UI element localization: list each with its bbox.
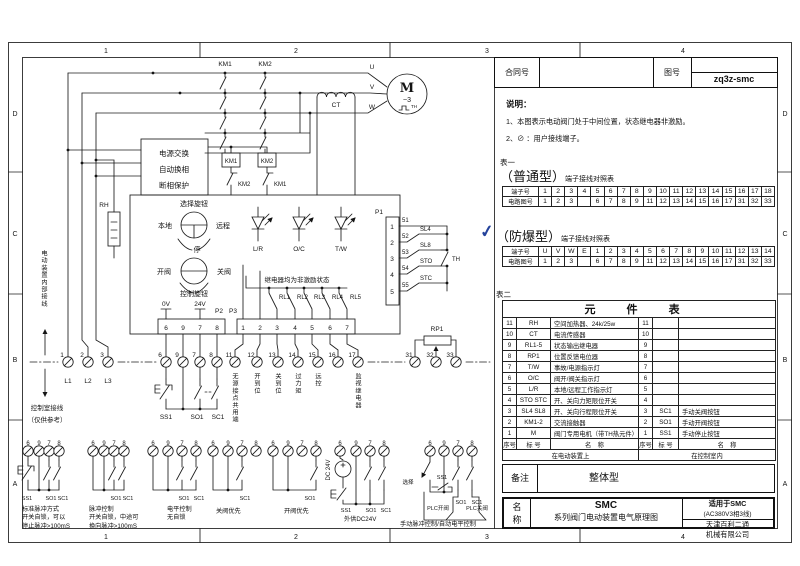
terminal-number: 33	[446, 352, 454, 359]
ex-button: SS1	[22, 496, 32, 502]
motor-letter: M	[400, 81, 414, 96]
selector-local: 本地	[158, 221, 172, 230]
interlock-label: KM1	[274, 182, 287, 188]
pin-label: 1	[241, 325, 245, 332]
wire-number: 55	[402, 283, 409, 289]
pin-label: 7	[345, 325, 349, 332]
title-block: 合同号 图号 zq3z-smc	[494, 57, 778, 88]
switch-label: SL4	[420, 227, 431, 233]
interlock-label: KM2	[238, 182, 251, 188]
pin-label: 4	[390, 272, 394, 279]
parts-row: 5L/R本地/远程工作指示灯5	[503, 384, 776, 395]
rail-label: 0V	[162, 301, 171, 308]
relay-label: RL4	[332, 295, 344, 301]
remark-value: 整体型	[537, 465, 774, 492]
table2-heading: （防爆型）端子接线对照表	[496, 226, 610, 246]
applicability-company: 适用于SMC (AC380V3相3线) 天津百利二通 机械有限公司	[682, 499, 773, 527]
terminal-number: 15	[308, 352, 316, 359]
phase-terminal: L1	[64, 378, 72, 385]
zone-row: B	[13, 357, 18, 364]
ex-button: SC1	[123, 496, 134, 502]
led-label: O/C	[293, 246, 305, 253]
ex-button: SO1	[455, 500, 466, 506]
pin-label: 5	[390, 289, 394, 296]
zone-col: 2	[294, 48, 298, 55]
signal-label: 开到位	[252, 373, 261, 395]
external-note: 控制室接线	[31, 403, 64, 412]
terminal-number: 6	[158, 352, 162, 359]
drawing-name: SMC 系列阀门电动装置电气原理图	[530, 499, 683, 527]
wire-number: 51	[402, 218, 409, 224]
switch-label: STO	[420, 259, 433, 265]
parts-row: 9RL1-5状态输出继电器9	[503, 340, 776, 351]
terminal-number: 16	[328, 352, 336, 359]
pot-label: RP1	[431, 326, 444, 333]
signal-label: 关到位	[273, 373, 282, 395]
pin-label: 2	[258, 325, 262, 332]
company-line1: 天津百利二通	[682, 520, 773, 530]
pin-label: 9	[181, 325, 185, 332]
terminal-map-table-standard: 端子号123456789101112131415161718 电路图号12367…	[502, 186, 775, 207]
applicable-line2: (AC380V3相3线)	[682, 509, 773, 520]
ex-button: SC1	[240, 496, 251, 502]
zone-col: 4	[681, 48, 685, 55]
selector-remote: 远程	[216, 221, 230, 230]
contactor-label: KM1	[218, 61, 232, 68]
motor-phases: ~3	[403, 97, 411, 104]
zone-col: 1	[104, 534, 108, 541]
type-label: （普通型）	[500, 169, 565, 184]
zone-col: 3	[485, 534, 489, 541]
pushbutton-station	[155, 368, 219, 410]
button-label: SO1	[190, 414, 203, 421]
ct-label: CT	[332, 102, 341, 109]
pin-label: 5	[310, 325, 314, 332]
knob-open: 开阀	[157, 267, 171, 276]
phase-label: U	[370, 64, 375, 71]
pin-label: 6	[164, 325, 168, 332]
ex-button: SO1	[304, 496, 315, 502]
switch-label: SL8	[420, 243, 431, 249]
example-caption: 开阀优先	[284, 508, 309, 516]
contract-no-value	[539, 58, 654, 87]
pin-label: 2	[390, 240, 394, 247]
pin-label: 8	[215, 325, 219, 332]
terminal-number: 8	[209, 352, 213, 359]
pin-label: 1	[390, 224, 394, 231]
external-note2: （仅供参考）	[28, 415, 67, 424]
parts-row: 11RH空间加热器、24k/25w11	[503, 318, 776, 329]
example-caption: 外供DC24V	[344, 516, 376, 524]
led-label: T/W	[335, 246, 348, 253]
terminal-number: 1	[60, 352, 64, 359]
coil-label: KM2	[261, 159, 274, 165]
ex-button: SO1	[45, 496, 56, 502]
ex-button: SC1	[194, 496, 205, 502]
parts-row: 1M阀门专用电机（带TH热元件）1SS1手动停止按钮	[503, 428, 776, 439]
terminal-number: 7	[192, 352, 196, 359]
dc-supply-label: DC 24V	[326, 459, 332, 480]
terminal-number: 12	[247, 352, 255, 359]
example-caption: 关阀优先	[216, 508, 241, 516]
ex-button: SO1	[365, 508, 376, 514]
terminal-number: 9	[175, 352, 179, 359]
signal-label: 远控	[313, 373, 322, 387]
terminal-number: 13	[268, 352, 276, 359]
pin-label: 6	[328, 325, 332, 332]
phase-terminal: L2	[84, 378, 92, 385]
pin-label: 7	[198, 325, 202, 332]
parts-row: 2KM1-2交流接触器2SO1手动开阀按钮	[503, 417, 776, 428]
phase-label: W	[369, 104, 376, 111]
relay-label: RL1	[279, 295, 291, 301]
applicable-line1: 适用于SMC	[682, 499, 773, 509]
selector-switch-label: 选择	[402, 478, 414, 486]
phase-label: V	[370, 84, 375, 91]
selector-title: 选择旋钮	[180, 199, 208, 208]
remark-label: 备注	[503, 465, 538, 492]
knob-close: 关阀	[217, 267, 231, 276]
signal-label: 监视继电器	[353, 373, 362, 409]
heater-label: RH	[99, 202, 109, 209]
terminal-number: 17	[348, 352, 356, 359]
type-label: （防爆型）	[496, 229, 561, 244]
connector-label: P3	[229, 308, 237, 315]
example-caption: 电平控制无自锁	[167, 506, 192, 523]
drawing-name-line2: 系列阀门电动装置电气原理图	[530, 512, 682, 523]
power-box-line: 自动换相	[159, 164, 189, 174]
terminal-number: 3	[100, 352, 104, 359]
example-caption: 脉冲控制开关自锁，中途可换向脉冲>100mS	[89, 506, 139, 531]
led-label: L/R	[253, 246, 263, 253]
note-item: 1、本图表示电动阀门处于中间位置，状态继电器非激励。	[506, 117, 774, 127]
button-label: SS1	[160, 414, 173, 421]
name-block: 名 称 SMC 系列阀门电动装置电气原理图 适用于SMC (AC380V3相3线…	[502, 497, 775, 529]
parts-footer: 序号标 号名 称 序号标 号名 称	[503, 439, 776, 450]
wire-number: 53	[402, 250, 409, 256]
drawing-name-line1: SMC	[530, 500, 682, 511]
power-box-line: 断相保护	[159, 180, 189, 190]
zone-row: D	[12, 111, 17, 118]
ex-button: SC1	[381, 508, 392, 514]
zone-col: 2	[294, 534, 298, 541]
relay-note: 继电器均为非激励状态	[265, 275, 331, 284]
thermal-contact-label: TH	[452, 257, 460, 263]
zone-row: C	[782, 231, 787, 238]
ex-button: SC1	[58, 496, 69, 502]
plc-open-label: PLC开阀	[427, 504, 449, 512]
signal-label: 无源接点共用端	[230, 373, 239, 423]
check-mark: ✓	[479, 221, 496, 243]
example-caption: 手动脉冲控制/自动电平控制	[400, 521, 476, 529]
parts-location: 在电动装置上在控制室内	[503, 450, 776, 461]
ex-button: SS1	[437, 475, 447, 481]
terminal-number: 32	[426, 352, 434, 359]
name-label-2: 称	[504, 513, 530, 526]
notes: 说明： 1、本图表示电动阀门处于中间位置，状态继电器非激励。 2、⊘ ：用户接线…	[506, 98, 774, 144]
pin-label: 4	[293, 325, 297, 332]
notes-heading: 说明：	[506, 98, 774, 110]
power-section	[68, 73, 387, 357]
ex-button: SO1	[178, 496, 189, 502]
button-label: SC1	[212, 414, 225, 421]
selector-stop: 停	[194, 245, 201, 254]
zone-row: A	[13, 481, 18, 488]
parts-row: 7T/W事故/电源指示灯7	[503, 362, 776, 373]
zone-row: D	[782, 111, 787, 118]
wire-number: 52	[402, 234, 409, 240]
note-item: 2、⊘ ：用户接线端子。	[506, 134, 774, 144]
terminal-number: 2	[80, 352, 84, 359]
pin-label: 3	[390, 256, 394, 263]
name-label-1: 名	[504, 500, 530, 513]
example-caption: 标准脉冲方式开关自锁，可以停止脉冲>100mS	[22, 506, 70, 531]
subtitle: 端子接线对照表	[565, 176, 614, 183]
contactor-label: KM2	[258, 61, 272, 68]
signal-label: 过力矩	[293, 373, 302, 395]
zone-row: C	[12, 231, 17, 238]
parts-table: 元 件 表 11RH空间加热器、24k/25w1110CT电流传感器109RL1…	[502, 300, 776, 461]
company-line2: 机械有限公司	[682, 530, 773, 540]
relay-label: RL3	[314, 295, 326, 301]
parts-row: 6O/C阀开/阀关指示灯6	[503, 373, 776, 384]
terminal-number: 14	[288, 352, 296, 359]
terminal-number: 31	[405, 352, 413, 359]
internal-wiring-note: 电动装置内部接线	[39, 250, 48, 308]
relay-label: RL2	[297, 295, 309, 301]
table1-heading: （普通型）端子接线对照表	[500, 166, 614, 186]
terminal-map-table-explosionproof: 端子号UVWE1234567891011121314 电路图号123678911…	[502, 246, 775, 267]
remark-block: 备注 整体型	[502, 464, 775, 493]
ex-button: SS1	[341, 508, 351, 514]
schematic-labels: KM1 KM2 U V W M ~3 TH CT 电源交换 自动换相 断相保护 …	[22, 61, 488, 514]
switch-label: STC	[420, 276, 433, 282]
contract-no-label: 合同号	[495, 58, 540, 87]
plc-close-label: PLC关阀	[466, 504, 488, 512]
drawing-no-value: zq3z-smc	[691, 72, 777, 87]
parts-title: 元 件 表	[503, 301, 776, 318]
zone-row: A	[783, 481, 788, 488]
drawing-sheet: 1 2 3 4 1 2 3 4 D C B A D C B A	[0, 0, 800, 566]
parts-row: 10CT电流传感器10	[503, 329, 776, 340]
parts-row: 3SL4 SL8开、关向行程限位开关3SC1手动关阀按钮	[503, 406, 776, 417]
zone-row: B	[783, 357, 788, 364]
zone-col: 1	[104, 48, 108, 55]
terminal-number: 11	[226, 352, 233, 359]
rail-label: 24V	[194, 301, 206, 308]
power-box-line: 电源交换	[159, 148, 189, 158]
parts-row: 8RP1位置反馈电位器8	[503, 351, 776, 362]
name-label-col: 名 称	[504, 499, 531, 527]
wire-number: 54	[402, 266, 409, 272]
connector-label: P2	[215, 308, 223, 315]
relay-label: RL5	[350, 295, 362, 301]
connector-label: P1	[375, 209, 383, 216]
subtitle: 端子接线对照表	[561, 236, 610, 243]
thermal-label: TH	[411, 104, 417, 109]
knob-title: 控制旋钮	[180, 289, 208, 298]
parts-row: 4STO STC开、关向力矩限位开关4	[503, 395, 776, 406]
ex-button: SO1	[110, 496, 121, 502]
parts-caption: 表二	[496, 289, 511, 300]
pin-label: 3	[275, 325, 279, 332]
coil-label: KM1	[225, 159, 238, 165]
drawing-no-upper	[691, 58, 777, 73]
zone-col: 3	[485, 48, 489, 55]
drawing-no-label: 图号	[653, 58, 692, 87]
phase-terminal: L3	[104, 378, 112, 385]
